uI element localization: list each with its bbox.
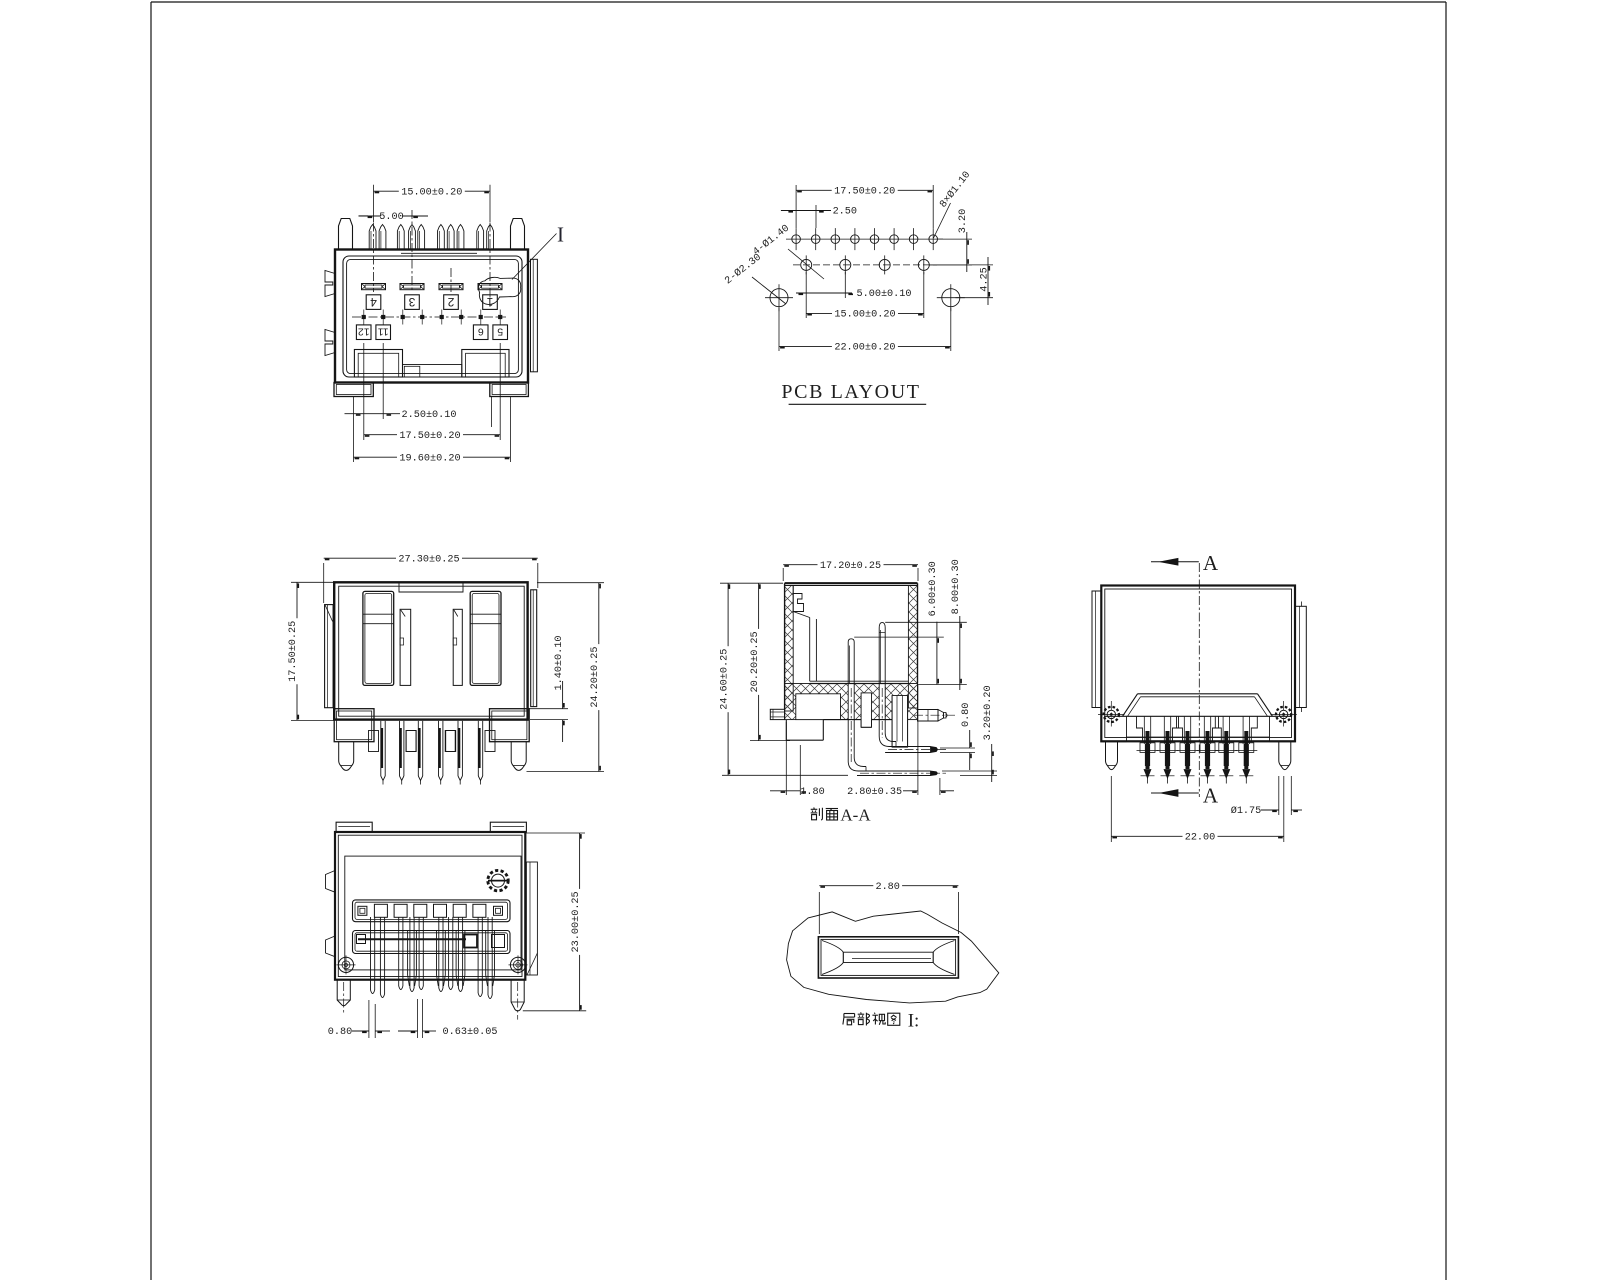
svg-text:23.00±0.25: 23.00±0.25 (571, 891, 582, 952)
svg-text:5.00: 5.00 (379, 212, 403, 223)
svg-text:22.00±0.20: 22.00±0.20 (834, 343, 895, 354)
svg-text:1: 1 (486, 295, 493, 309)
svg-text:27.30±0.25: 27.30±0.25 (398, 554, 459, 565)
svg-text:5: 5 (497, 326, 503, 338)
svg-text:A: A (1203, 551, 1219, 575)
svg-text:3.20±0.20: 3.20±0.20 (983, 685, 994, 740)
svg-text:24.60±0.25: 24.60±0.25 (719, 649, 730, 710)
svg-text:4.25: 4.25 (980, 267, 991, 291)
svg-text:17.50±0.25: 17.50±0.25 (288, 621, 299, 682)
svg-text:A: A (1203, 784, 1219, 808)
svg-text:17.50±0.20: 17.50±0.20 (399, 431, 460, 442)
svg-text:1.80: 1.80 (800, 787, 824, 798)
svg-text:Ø1.75: Ø1.75 (1231, 805, 1262, 817)
svg-text:2.80: 2.80 (875, 882, 899, 893)
svg-text:5.00±0.10: 5.00±0.10 (856, 289, 911, 300)
svg-text:2.50±0.10: 2.50±0.10 (401, 410, 456, 421)
svg-text:8.00±0.30: 8.00±0.30 (951, 559, 962, 614)
svg-text:2: 2 (447, 295, 454, 309)
svg-text:2.80±0.35: 2.80±0.35 (847, 787, 902, 798)
svg-text:22.00: 22.00 (1185, 833, 1216, 844)
svg-text:6.00±0.30: 6.00±0.30 (928, 561, 939, 616)
svg-text:17.20±0.25: 17.20±0.25 (820, 561, 881, 572)
svg-text:4: 4 (370, 295, 377, 309)
svg-text:15.00±0.20: 15.00±0.20 (834, 310, 895, 321)
svg-text:0.80: 0.80 (961, 703, 972, 727)
svg-text:0.63±0.05: 0.63±0.05 (442, 1027, 497, 1038)
svg-text:20.20±0.25: 20.20±0.25 (750, 631, 761, 692)
svg-text:24.20±0.25: 24.20±0.25 (590, 647, 601, 708)
svg-text:PCB LAYOUT: PCB LAYOUT (781, 381, 920, 403)
svg-text:I:: I: (908, 1011, 920, 1032)
svg-text:3: 3 (408, 295, 415, 309)
svg-text:11: 11 (378, 326, 389, 338)
svg-text:0.80: 0.80 (328, 1027, 352, 1038)
svg-text:19.60±0.20: 19.60±0.20 (399, 453, 460, 464)
svg-text:1.40±0.10: 1.40±0.10 (554, 635, 565, 690)
svg-text:2.50: 2.50 (833, 207, 857, 218)
svg-text:12: 12 (358, 326, 370, 338)
svg-text:17.50±0.20: 17.50±0.20 (834, 187, 895, 198)
svg-text:3.20: 3.20 (958, 209, 969, 233)
svg-text:A-A: A-A (840, 806, 871, 825)
svg-text:15.00±0.20: 15.00±0.20 (401, 187, 462, 198)
svg-text:I: I (557, 223, 564, 247)
svg-text:6: 6 (478, 326, 484, 338)
